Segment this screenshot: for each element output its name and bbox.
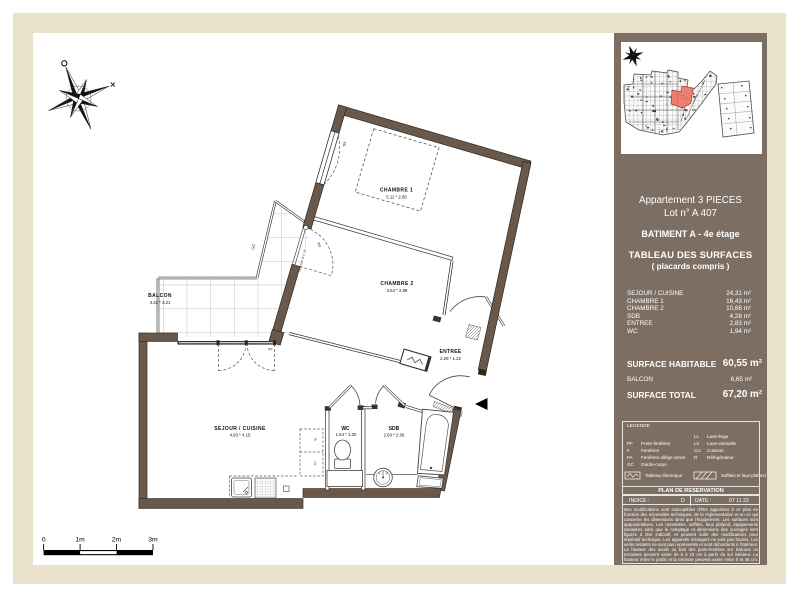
svg-text:2m: 2m [112, 537, 122, 544]
svg-text:1m: 1m [75, 537, 85, 544]
svg-text:3.32 * 3.21: 3.32 * 3.21 [150, 300, 171, 305]
svg-text:FA: FA [342, 142, 347, 147]
svg-text:5.11 * 2.85: 5.11 * 2.85 [386, 195, 407, 200]
svg-text:GC: GC [250, 243, 256, 250]
svg-text:BALCON: BALCON [148, 293, 172, 299]
svg-text:2.60 * 2.06: 2.60 * 2.06 [384, 433, 405, 438]
svg-text:R: R [313, 438, 317, 441]
svg-text:1.64 * 1.00: 1.64 * 1.00 [336, 432, 357, 437]
svg-text:LV: LV [313, 461, 317, 466]
svg-text:SDB: SDB [389, 426, 400, 432]
svg-text:PF: PF [268, 348, 274, 352]
svg-text:2.29 * 1.22: 2.29 * 1.22 [440, 356, 461, 361]
svg-text:SEJOUR / CUISINE: SEJOUR / CUISINE [214, 426, 266, 432]
svg-text:3m: 3m [148, 537, 158, 544]
svg-text:PF: PF [316, 242, 322, 249]
svg-text:CHAMBRE 2: CHAMBRE 2 [380, 281, 413, 287]
svg-text:ENTREE: ENTREE [439, 349, 461, 355]
svg-text:3.64 * 2.89: 3.64 * 2.89 [387, 288, 408, 293]
svg-text:4.93 * 4.15: 4.93 * 4.15 [230, 433, 251, 438]
svg-text:0: 0 [42, 537, 46, 544]
svg-text:CHAMBRE 1: CHAMBRE 1 [380, 188, 413, 194]
